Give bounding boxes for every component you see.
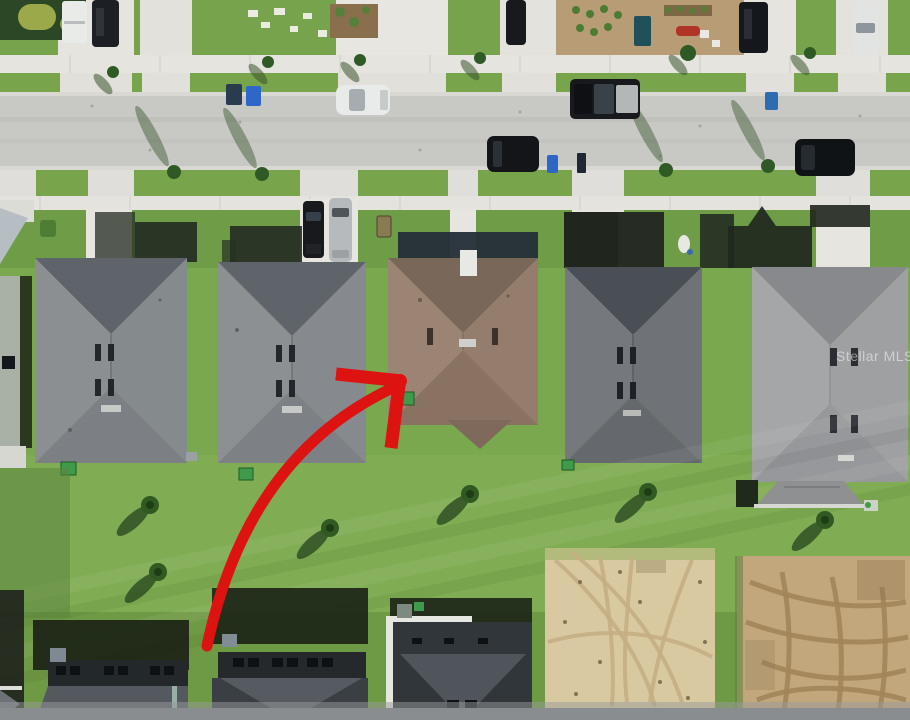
roof-vent: [108, 379, 114, 396]
shrub-row: [572, 6, 580, 14]
street-stain: [419, 149, 422, 152]
yard-debris: [274, 8, 285, 15]
shrub: [362, 6, 370, 14]
utility-box: [562, 460, 574, 470]
suv-windshield: [306, 212, 321, 221]
roof-vent: [95, 344, 101, 361]
window: [287, 658, 298, 667]
ac-unit: [186, 452, 197, 461]
tree: [466, 490, 474, 498]
roof-vent: [289, 345, 295, 362]
yard-debris: [700, 30, 709, 38]
pointer-arrowhead: [336, 374, 402, 381]
window: [150, 666, 160, 675]
dumpster: [634, 16, 651, 46]
person-object: [687, 249, 693, 255]
ac-unit: [397, 604, 412, 618]
shrub-row: [586, 10, 594, 18]
dirt-speckle: [638, 600, 642, 604]
roof-vent: [276, 345, 282, 362]
tire-marks: [0, 117, 910, 122]
yard-debris: [712, 40, 720, 47]
street-stain: [519, 111, 522, 114]
house-shadow: [736, 480, 758, 507]
shrub-row: [614, 11, 622, 19]
ac-unit: [50, 648, 66, 662]
trash-bin: [765, 92, 778, 110]
roof-vent: [630, 347, 636, 364]
shrub: [689, 8, 695, 14]
sidewalk: [0, 196, 910, 210]
trash-bin: [246, 86, 261, 106]
dirt-speckle: [658, 680, 662, 684]
tree: [255, 167, 269, 181]
shrub: [335, 7, 345, 17]
tree: [167, 165, 181, 179]
truck-hood: [574, 84, 592, 114]
driveway-apron: [572, 170, 624, 196]
roof-vent: [289, 380, 295, 397]
mailbox: [577, 153, 586, 173]
suv-windshield: [96, 8, 104, 36]
trash-bin: [226, 84, 242, 105]
driveway-apron: [838, 73, 886, 95]
driveway-apron: [142, 73, 190, 95]
van-hood: [332, 250, 349, 258]
tree: [644, 488, 652, 496]
window: [322, 658, 333, 667]
shrub: [665, 7, 671, 13]
driveway-apron: [300, 170, 358, 196]
dirt-speckle: [598, 660, 602, 664]
shrub: [40, 220, 56, 237]
shrub: [677, 6, 683, 12]
street-stain: [91, 105, 94, 108]
bush: [18, 4, 56, 30]
roof-trim: [754, 504, 866, 508]
tree: [326, 524, 334, 532]
roof-vent: [830, 348, 837, 366]
roof-vent: [617, 347, 623, 364]
roof-stain: [235, 328, 239, 332]
sidewalk: [0, 55, 910, 73]
house-shadow: [95, 212, 135, 258]
suv-windshield: [744, 9, 752, 39]
dirt-speckle: [563, 620, 567, 624]
suv-windshield: [493, 141, 502, 167]
dirt-speckle: [618, 570, 622, 574]
shrub: [701, 6, 707, 12]
tree: [821, 516, 829, 524]
roof-trim: [0, 686, 22, 690]
ridge-vent: [838, 455, 854, 461]
suv: [739, 2, 768, 53]
roof-stain: [507, 295, 510, 298]
roof-vent: [95, 379, 101, 396]
yard-debris: [290, 26, 298, 32]
shrub-row: [590, 28, 598, 36]
roof-stain: [798, 308, 802, 312]
aerial-photo-svg: [0, 0, 910, 720]
yard-debris: [261, 22, 270, 28]
roof-vent: [276, 380, 282, 397]
car-hood: [380, 90, 388, 110]
house-shadow: [810, 205, 870, 227]
van-windshield: [332, 208, 349, 217]
window: [2, 356, 15, 369]
window: [248, 658, 259, 667]
roof-vent: [478, 638, 488, 644]
tire-marks: [0, 139, 910, 143]
photo-edge-blur: [0, 708, 910, 720]
shrub: [349, 17, 359, 27]
roof-stain: [309, 299, 312, 302]
street-stain: [699, 125, 702, 128]
trash-bin: [547, 155, 558, 173]
roof-stain: [418, 298, 422, 302]
driveway-apron: [502, 73, 556, 95]
street-stain: [239, 121, 242, 124]
red-lounger: [676, 26, 700, 36]
dirt-lot-edge: [735, 556, 743, 716]
tree: [804, 47, 816, 59]
dirt-speckle: [686, 696, 690, 700]
utility-box: [414, 602, 424, 611]
shrub-row: [604, 23, 612, 31]
house-shadow: [20, 276, 32, 448]
roof-vent: [427, 328, 433, 345]
ac-unit: [222, 634, 237, 647]
street-stain: [149, 149, 152, 152]
patio: [0, 446, 26, 468]
ridge-vent: [623, 410, 641, 416]
aerial-photo: Stellar MLS: [0, 0, 910, 720]
window: [118, 666, 128, 675]
car: [506, 0, 526, 45]
tree: [474, 52, 486, 64]
pointer-arrowhead: [393, 374, 407, 388]
wall-niche: [460, 250, 477, 276]
roof-stain: [159, 299, 162, 302]
dirt-clump: [857, 560, 905, 600]
window: [56, 666, 66, 675]
tree: [659, 163, 673, 177]
pointer-arrowhead: [391, 378, 400, 448]
roof-vent: [492, 328, 498, 345]
shrub-row: [576, 24, 584, 32]
window: [164, 666, 174, 675]
garage-roof: [618, 212, 664, 267]
dirt-speckle: [698, 580, 702, 584]
tree: [680, 45, 696, 61]
driveway-apron: [746, 73, 794, 95]
tree: [154, 568, 162, 576]
window: [272, 658, 283, 667]
utility-box: [377, 216, 391, 237]
car-windshield: [349, 89, 365, 111]
window: [307, 658, 318, 667]
ridge-vent: [282, 406, 302, 413]
dirt-clump: [636, 560, 666, 573]
roof-vent: [630, 382, 636, 399]
truck-cab: [594, 84, 614, 114]
ridge-vent: [101, 405, 121, 412]
roof-stain: [68, 428, 72, 432]
suv-hood: [306, 244, 321, 254]
roof-vent: [617, 382, 623, 399]
driveway-apron: [88, 170, 134, 196]
yard-debris: [318, 30, 327, 37]
window: [233, 658, 244, 667]
roof-vent: [851, 348, 858, 366]
truck-bed-cover: [616, 85, 638, 113]
truck-bed-line: [64, 21, 85, 24]
dirt-clump: [745, 640, 775, 690]
roof-vent: [412, 638, 422, 644]
house-shadow: [564, 212, 618, 268]
window: [70, 666, 80, 675]
tree: [354, 54, 366, 66]
driveway-apron: [448, 170, 478, 196]
dirt-speckle: [578, 580, 582, 584]
dirt-speckle: [574, 692, 578, 696]
tree: [761, 159, 775, 173]
yard-debris: [248, 10, 258, 17]
dirt-speckle: [703, 640, 707, 644]
utility-box: [239, 468, 253, 480]
suv-windshield: [801, 145, 815, 170]
shrub-row: [600, 5, 608, 13]
truck-windshield: [856, 23, 875, 33]
utility-box: [865, 502, 871, 508]
tree: [262, 56, 274, 68]
tree: [146, 501, 154, 509]
yard-debris: [303, 13, 312, 19]
roof-vent: [444, 638, 454, 644]
window: [104, 666, 114, 675]
street-stain: [859, 115, 862, 118]
roof-vent: [108, 344, 114, 361]
tree: [107, 66, 119, 78]
driveway-apron: [0, 170, 36, 196]
house-shadow: [135, 222, 197, 262]
house-shadow: [230, 226, 302, 264]
ridge-vent: [459, 339, 476, 347]
